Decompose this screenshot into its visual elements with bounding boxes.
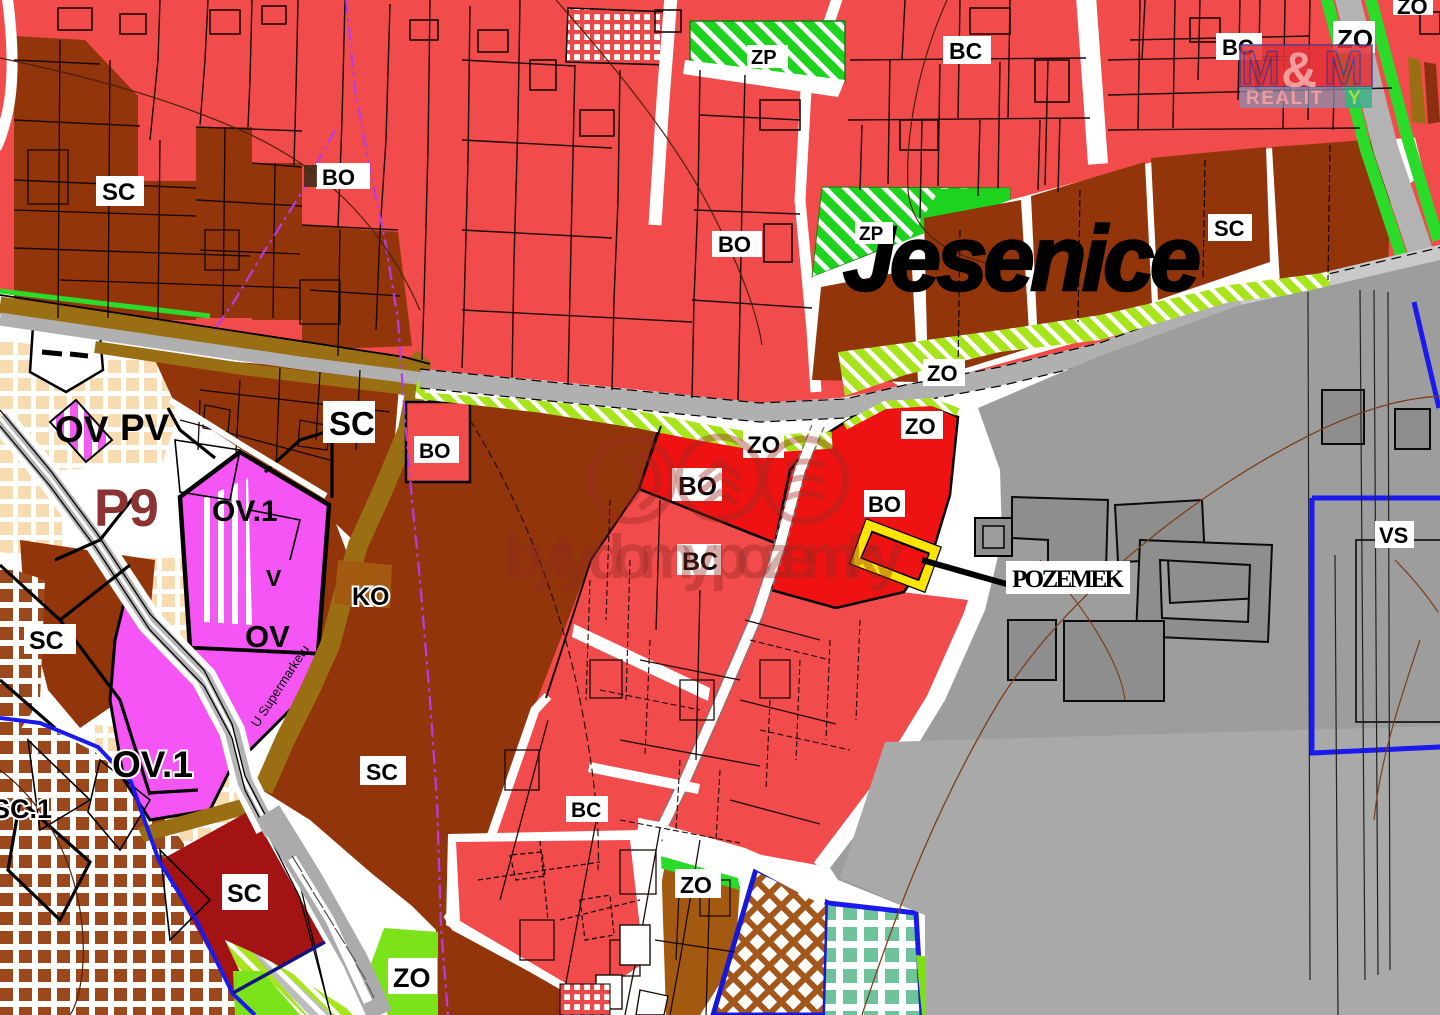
svg-text:BO: BO (718, 232, 751, 257)
svg-text:SC: SC (329, 405, 375, 442)
svg-text:ZO: ZO (905, 414, 936, 439)
svg-text:BC: BC (949, 38, 982, 64)
svg-text:V: V (266, 565, 282, 591)
svg-text:ZP: ZP (859, 224, 884, 245)
svg-text:BO: BO (868, 492, 901, 517)
svg-text:VS: VS (1379, 523, 1408, 548)
svg-text:OV.1: OV.1 (212, 495, 278, 528)
svg-text:BO: BO (322, 165, 355, 190)
svg-text:SC: SC (1214, 216, 1245, 241)
svg-text:Y: Y (1348, 88, 1361, 109)
svg-text:SC: SC (227, 880, 262, 908)
svg-text:ZO: ZO (1397, 0, 1428, 19)
svg-text:ZP: ZP (751, 47, 777, 69)
svg-text:byty domy pozemky: byty domy pozemky (503, 523, 904, 592)
svg-text:M: M (1324, 41, 1363, 94)
svg-text:PV: PV (120, 407, 170, 448)
svg-text:ZO: ZO (393, 963, 431, 993)
svg-text:KO: KO (352, 583, 390, 611)
svg-text:ZO: ZO (927, 361, 958, 386)
svg-text:OV: OV (245, 619, 290, 654)
svg-text:M: M (1241, 41, 1280, 94)
svg-text:Jesenice: Jesenice (843, 208, 1201, 310)
svg-text:OV: OV (55, 409, 109, 450)
svg-text:P9: P9 (94, 479, 159, 538)
svg-text:OV.1: OV.1 (112, 744, 193, 785)
svg-text:BO: BO (419, 440, 451, 463)
svg-text:SC.1: SC.1 (0, 794, 52, 824)
svg-text:ZO: ZO (680, 872, 712, 898)
svg-text:SC: SC (366, 759, 398, 785)
svg-text:POZEMEK: POZEMEK (1012, 566, 1125, 593)
svg-text:BC: BC (571, 799, 601, 822)
svg-text:REALIT: REALIT (1246, 88, 1324, 109)
svg-text:SC: SC (29, 627, 64, 655)
svg-text:SC: SC (102, 179, 135, 206)
